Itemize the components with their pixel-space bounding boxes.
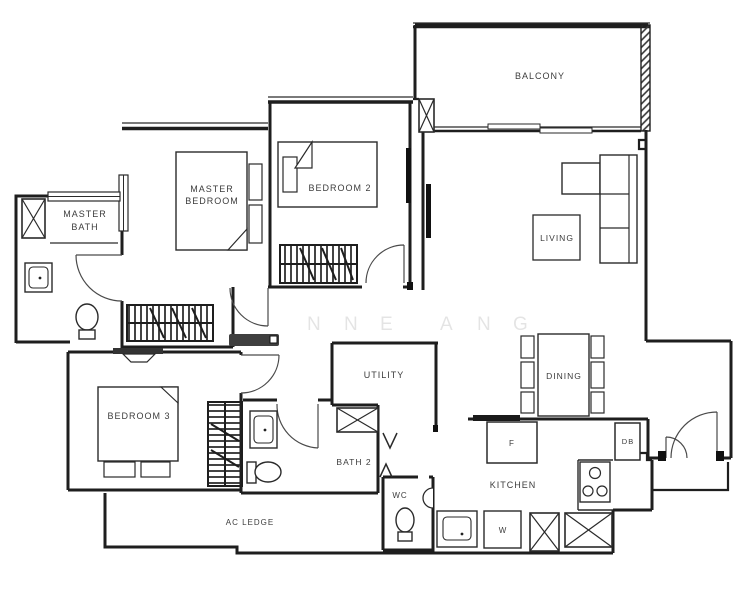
room-label-bedroom2: BEDROOM 2 [308, 183, 371, 193]
kitchen-x-box-large [565, 513, 612, 547]
entry-door-main-leaf [671, 412, 717, 458]
room-label-kitchen: KITCHEN [490, 480, 537, 490]
svg-text:G: G [513, 314, 528, 335]
wall-finish-bar [426, 184, 431, 238]
floor-plan-page: N N E A N G BALCONY LIVING DINING MASTER… [0, 0, 741, 600]
room-label-master-bedroom-1: MASTER [190, 184, 234, 194]
bath2-sink [250, 411, 277, 448]
room-label-wc: WC [392, 491, 407, 500]
svg-text:N: N [307, 314, 321, 335]
svg-text:N: N [344, 314, 358, 335]
window-bands [48, 23, 650, 243]
kitchen-counter-bar [473, 415, 520, 421]
master-bath-shaft-x-box [22, 199, 45, 238]
kitchen-sink [437, 511, 477, 547]
bedroom2-bed [278, 142, 377, 207]
fixture-label-db: DB [622, 437, 634, 446]
bedroom2-wardrobe [280, 245, 357, 283]
tv-console [113, 348, 163, 362]
room-label-bath2: BATH 2 [336, 457, 371, 467]
floor-plan-drawing: N N E A N G BALCONY LIVING DINING MASTER… [0, 0, 741, 600]
wall-end-tick [433, 425, 438, 432]
room-label-living: LIVING [540, 233, 574, 243]
watermark: N N E A N G [307, 314, 528, 335]
room-label-master-bath-2: BATH [71, 222, 98, 232]
room-label-master-bath-1: MASTER [63, 209, 107, 219]
fixture-label-washer: W [499, 526, 508, 535]
column-x-box [419, 99, 434, 132]
kitchen-x-box-small [530, 513, 559, 551]
wc-basin [423, 488, 433, 508]
sliding-panel [229, 334, 279, 346]
room-label-utility: UTILITY [364, 370, 405, 380]
bath2-door [277, 404, 318, 448]
room-label-bedroom3: BEDROOM 3 [107, 411, 170, 421]
utility-x-box [337, 408, 378, 432]
room-label-master-bedroom-2: BEDROOM [185, 196, 239, 206]
entry-door-small-leaf [666, 437, 687, 458]
master-bath-toilet [76, 304, 98, 339]
svg-text:N: N [477, 314, 491, 335]
room-label-ac-ledge: AC LEDGE [226, 518, 274, 527]
secondary-walls [413, 99, 728, 490]
bedroom3-bed [98, 387, 178, 477]
bedroom3-door [241, 355, 279, 393]
wc-toilet [396, 508, 414, 541]
room-label-dining: DINING [546, 371, 582, 381]
svg-text:E: E [380, 314, 393, 335]
stove [580, 462, 610, 502]
room-label-balcony: BALCONY [515, 71, 565, 81]
master-bath-door [76, 255, 122, 301]
bedroom3-wardrobe [208, 402, 242, 486]
fixture-label-fridge: F [509, 439, 515, 448]
svg-text:A: A [440, 314, 453, 335]
shaft-zigzag-marks [380, 433, 397, 477]
door-jamb [658, 451, 666, 461]
balcony-edge-hatch [641, 25, 650, 131]
master-bath-sink [25, 263, 52, 292]
wall-end-tick [407, 282, 413, 290]
wall-finish-bar [406, 148, 411, 203]
bath2-toilet [247, 462, 281, 483]
master-wardrobe [127, 305, 213, 341]
master-bedroom-door [230, 288, 268, 326]
door-jamb [716, 451, 724, 461]
balcony-sliding-panel [540, 128, 592, 133]
bedroom2-door [366, 245, 404, 283]
balcony-sliding-panel [488, 124, 540, 129]
